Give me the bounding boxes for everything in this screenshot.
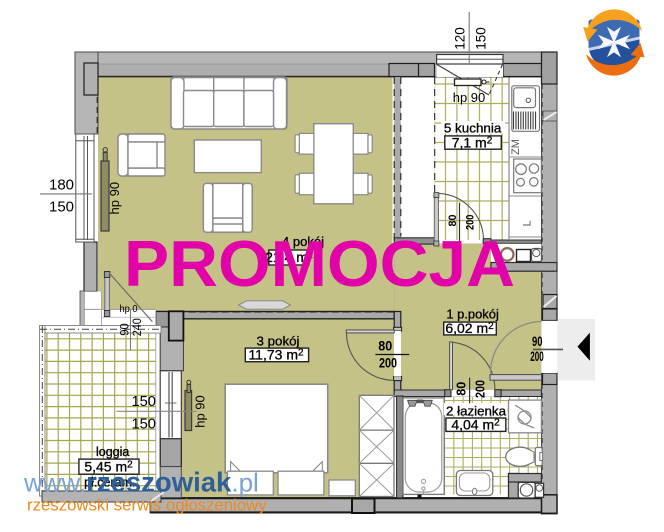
svg-text:rzeszowski serwis ogłoszeniowy: rzeszowski serwis ogłoszeniowy [27, 496, 267, 515]
svg-text:hp 90: hp 90 [453, 91, 486, 105]
svg-text:80: 80 [453, 382, 468, 396]
svg-text:200: 200 [530, 349, 544, 364]
svg-text:200: 200 [472, 380, 487, 398]
svg-text:www.rzeszowiak.pl: www.rzeszowiak.pl [23, 467, 259, 498]
svg-text:180: 180 [49, 177, 74, 194]
svg-text:6,02 m2: 6,02 m2 [445, 320, 494, 336]
svg-text:90: 90 [532, 334, 543, 349]
svg-text:240: 240 [132, 318, 144, 336]
svg-text:150: 150 [49, 199, 74, 216]
svg-text:80: 80 [447, 215, 459, 227]
svg-text:150: 150 [473, 27, 488, 50]
svg-text:150: 150 [131, 415, 156, 432]
svg-text:5 kuchnia: 5 kuchnia [444, 121, 502, 135]
svg-text:200: 200 [379, 355, 397, 370]
svg-text:80: 80 [378, 339, 392, 354]
svg-text:4,04 m2: 4,04 m2 [451, 416, 500, 432]
svg-text:hp 90: hp 90 [192, 395, 207, 428]
svg-text:7,1 m2: 7,1 m2 [452, 134, 493, 150]
svg-text:150: 150 [131, 393, 156, 410]
svg-text:hp 0: hp 0 [120, 303, 138, 315]
svg-text:PROMOCJA: PROMOCJA [124, 227, 515, 300]
svg-text:loggia: loggia [96, 445, 129, 459]
svg-text:L: L [522, 220, 534, 226]
svg-text:11,73 m2: 11,73 m2 [248, 347, 304, 363]
svg-text:hp 90: hp 90 [107, 182, 122, 215]
svg-text:ZM: ZM [510, 139, 522, 155]
svg-text:120: 120 [452, 27, 467, 50]
svg-text:90: 90 [119, 323, 131, 336]
